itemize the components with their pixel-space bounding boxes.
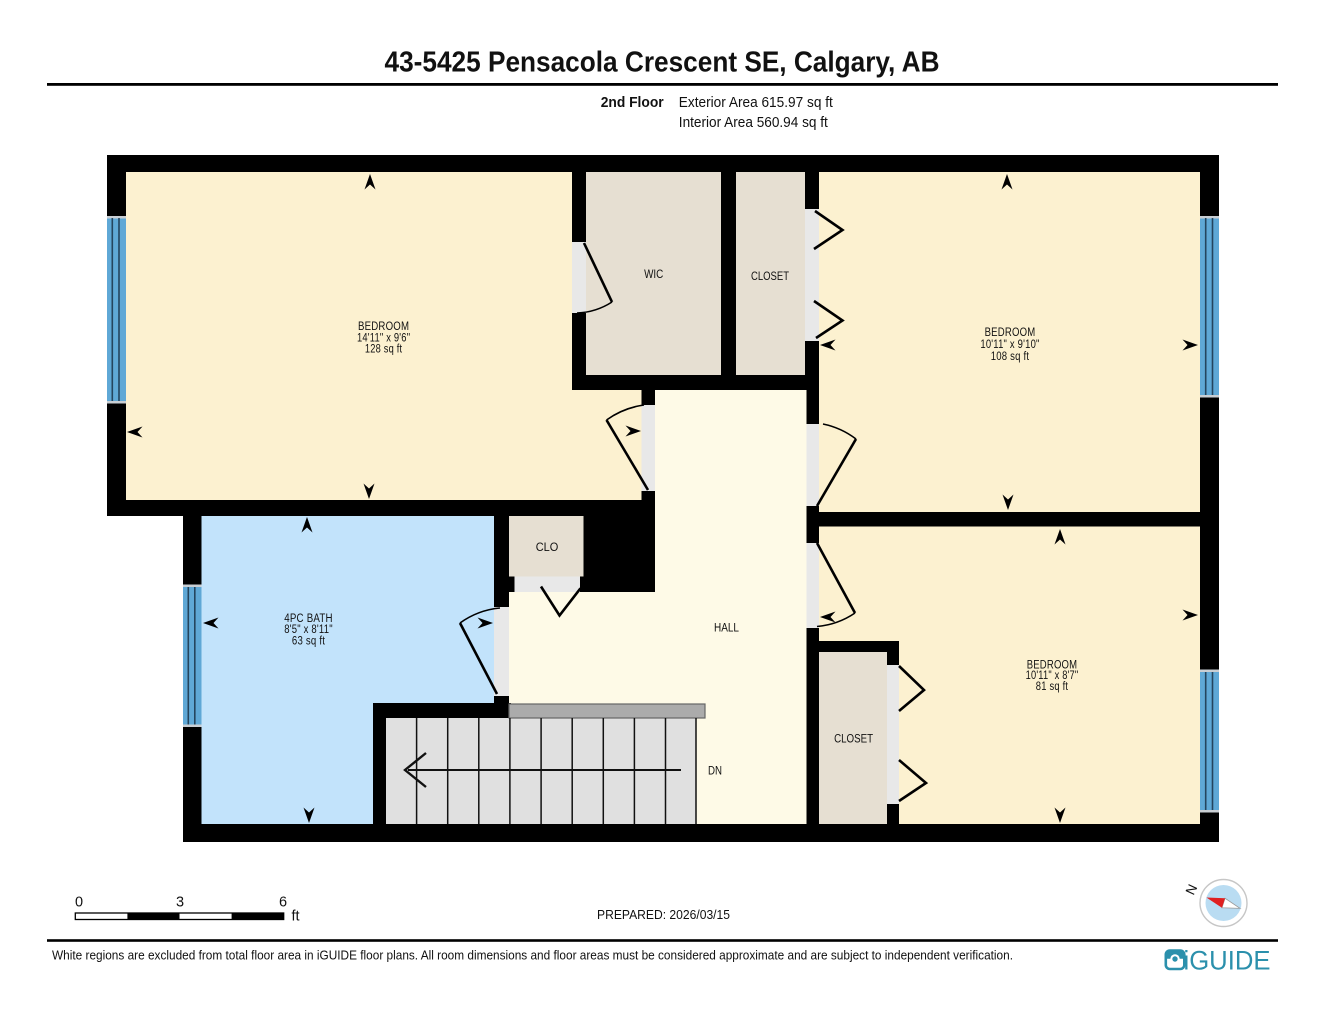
svg-text:Interior Area 560.94 sq ft: Interior Area 560.94 sq ft	[679, 115, 828, 131]
svg-text:81 sq ft: 81 sq ft	[1036, 681, 1069, 693]
svg-text:14'11" x 9'6": 14'11" x 9'6"	[357, 332, 410, 344]
svg-text:43-5425 Pensacola Crescent SE,: 43-5425 Pensacola Crescent SE, Calgary, …	[385, 47, 940, 79]
svg-text:WIC: WIC	[644, 269, 663, 281]
svg-text:3: 3	[176, 895, 184, 911]
svg-text:CLO: CLO	[536, 542, 559, 554]
svg-text:BEDROOM: BEDROOM	[358, 321, 409, 333]
svg-text:128 sq ft: 128 sq ft	[365, 344, 403, 356]
svg-text:White regions are excluded fro: White regions are excluded from total fl…	[52, 948, 1013, 963]
svg-text:N: N	[1183, 882, 1201, 897]
svg-text:63 sq ft: 63 sq ft	[292, 636, 326, 648]
svg-text:DN: DN	[708, 766, 722, 778]
svg-text:Exterior Area 615.97 sq ft: Exterior Area 615.97 sq ft	[679, 95, 833, 111]
svg-text:PREPARED: 2026/03/15: PREPARED: 2026/03/15	[597, 907, 730, 922]
svg-text:BEDROOM: BEDROOM	[985, 327, 1036, 339]
svg-text:10'11" x 9'10": 10'11" x 9'10"	[980, 339, 1039, 351]
svg-text:CLOSET: CLOSET	[834, 734, 873, 746]
svg-text:iGUIDE: iGUIDE	[1184, 946, 1271, 976]
svg-text:CLOSET: CLOSET	[751, 271, 789, 283]
svg-text:8'5" x 8'11": 8'5" x 8'11"	[284, 624, 333, 636]
svg-text:6: 6	[279, 895, 287, 911]
svg-text:HALL: HALL	[714, 623, 740, 635]
svg-text:108 sq ft: 108 sq ft	[991, 351, 1030, 363]
svg-text:0: 0	[75, 895, 83, 911]
svg-text:ft: ft	[292, 909, 300, 925]
svg-text:2nd Floor: 2nd Floor	[601, 95, 664, 111]
